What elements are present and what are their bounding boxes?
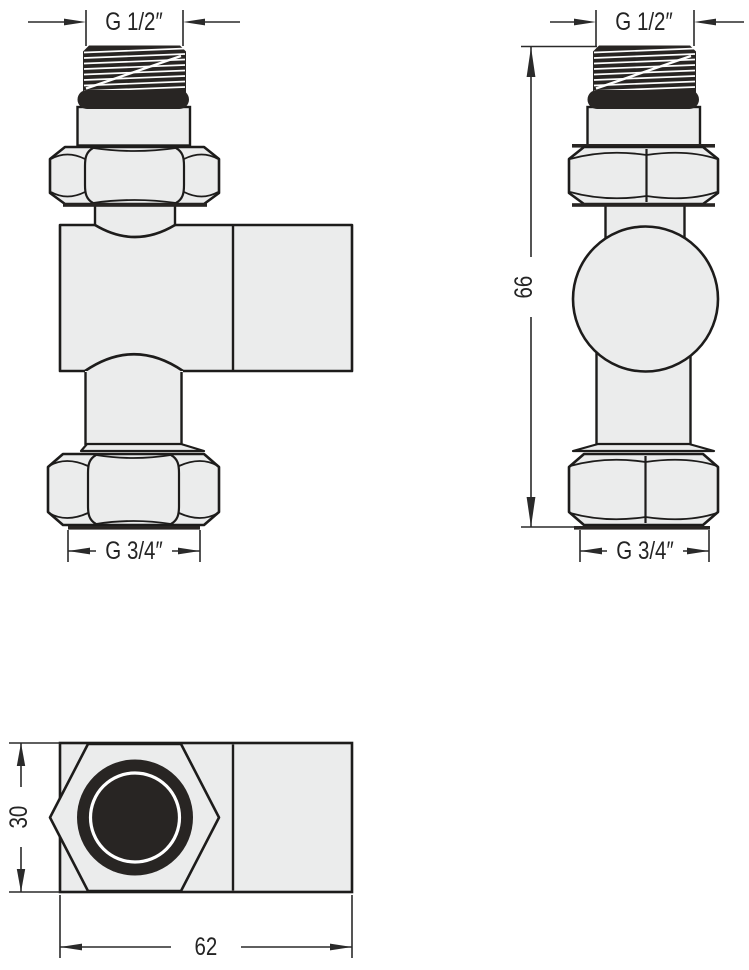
- side-view: [521, 10, 744, 562]
- top-port-opening: [77, 760, 193, 876]
- side-oring: [588, 90, 700, 109]
- front-lower-neck: [81, 371, 204, 451]
- top-depth-label: 30: [5, 787, 33, 847]
- front-thread-top-label: G 1/2″: [94, 8, 174, 36]
- front-lower-nut-washer: [68, 526, 200, 530]
- front-thread-bottom-label: G 3/4″: [96, 537, 172, 565]
- front-oring: [78, 90, 190, 109]
- top-width-label: 62: [171, 933, 241, 961]
- side-body-circle: [573, 227, 718, 372]
- side-lower-neck-skirt: [573, 444, 714, 451]
- front-union-cylinder: [78, 107, 191, 146]
- technical-drawing-page: G 1/2″ G 3/4″ G 1/2″ G 3/4″ 66 30 62: [0, 0, 749, 970]
- side-thread: [593, 46, 696, 94]
- front-view: [28, 10, 352, 562]
- side-height-label: 66: [510, 257, 538, 317]
- front-upper-nut-washer: [63, 203, 207, 207]
- front-thread: [83, 46, 186, 94]
- side-upper-nut-washer: [572, 203, 715, 207]
- drawing-canvas: [0, 0, 749, 970]
- front-lower-nut: [48, 454, 219, 530]
- front-lower-neck-skirt: [81, 444, 204, 451]
- front-upper-neck: [95, 205, 175, 226]
- front-body: [60, 225, 352, 371]
- side-thread-bottom-label: G 3/4″: [607, 537, 683, 565]
- side-upper-nut: [569, 144, 718, 207]
- side-thread-top-label: G 1/2″: [604, 8, 684, 36]
- side-lower-nut: [569, 454, 718, 530]
- side-lower-nut-washer: [574, 526, 710, 530]
- front-upper-nut: [50, 147, 219, 207]
- top-view: [9, 743, 352, 958]
- side-union-cylinder: [588, 107, 701, 146]
